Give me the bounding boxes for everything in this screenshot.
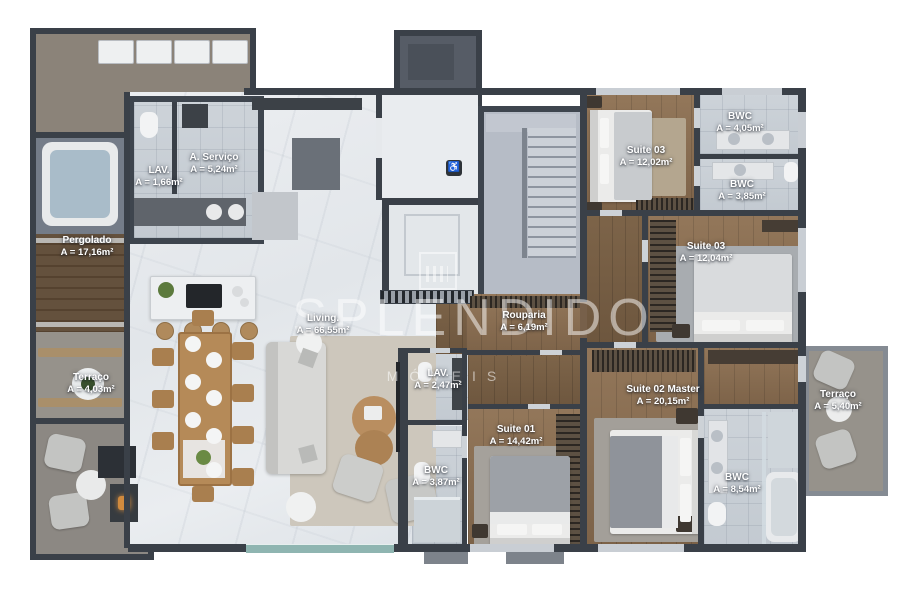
door-bwc-master	[698, 416, 704, 438]
room-label-terraco-esq: TerraçoA = 4,03m²	[67, 372, 114, 396]
dining-chair	[232, 384, 254, 402]
cooktop	[186, 284, 222, 308]
stair-rail	[522, 128, 527, 258]
dinner-plate	[185, 336, 201, 352]
window-suite03a	[596, 88, 680, 95]
dinner-plate	[206, 390, 222, 406]
dining-chair	[232, 342, 254, 360]
door-bwc-suite03a	[694, 108, 700, 128]
hall-console	[252, 98, 362, 110]
room-label-terraco-dir: TerraçoA = 5,40m²	[814, 389, 861, 413]
dining-chair	[192, 310, 214, 326]
door-terrace-right	[798, 356, 806, 382]
toilet	[708, 502, 726, 526]
pillow	[532, 524, 562, 535]
nightstand	[472, 524, 488, 538]
window-bwc-top	[722, 88, 782, 95]
watermark-logo-bars	[426, 266, 448, 282]
hot-tub-water	[50, 150, 110, 218]
pillow	[680, 438, 691, 476]
room-label-bwc-suite01: BWCA = 3,87m²	[412, 465, 459, 489]
nightstand	[586, 96, 602, 108]
room-label-servico: A. ServiçoA = 5,24m²	[190, 152, 239, 176]
door-elevator-hall	[376, 118, 382, 158]
room-label-bwc-suite03a: BWCA = 4,05m²	[716, 111, 763, 135]
bwc-divider-wall	[700, 154, 804, 159]
basin	[762, 133, 774, 145]
suite01-top-wall	[468, 404, 582, 409]
door-suite01	[528, 404, 550, 409]
lav-bottom-wall	[406, 420, 466, 425]
dining-chair	[232, 468, 254, 486]
bowl	[240, 298, 249, 307]
stair-steps	[528, 128, 576, 258]
room-label-rouparia: RoupariaA = 6,19m²	[500, 310, 547, 334]
room-label-lav-intimo: LAV.A = 2,47m²	[414, 368, 461, 392]
ac-unit	[98, 40, 134, 64]
nightstand	[672, 324, 690, 338]
door-suite03a	[600, 210, 622, 216]
facade-ledge	[506, 552, 564, 564]
room-label-suite01: Suite 01A = 14,42m²	[490, 424, 543, 448]
outer-wall-bottom	[128, 544, 806, 552]
washer-drum	[228, 204, 244, 220]
ac-unit	[136, 40, 172, 64]
pillow	[497, 524, 527, 535]
entry-bwc-wall	[704, 404, 804, 409]
dining-chair	[152, 348, 174, 366]
foyer-mat	[252, 192, 298, 240]
nightstand	[676, 408, 698, 424]
room-label-suite03b: Suite 03A = 12,04m²	[680, 241, 733, 265]
duct-shaft-inner	[408, 44, 454, 80]
suite03a-headboard	[590, 110, 598, 202]
door-suite03b	[642, 240, 648, 262]
rouparia-bottom-wall	[466, 350, 582, 355]
glass-railing	[246, 544, 394, 553]
window-right-1	[798, 112, 806, 148]
pillow	[600, 154, 609, 184]
room-label-pergolado: PergoladoA = 17,16m²	[61, 235, 114, 259]
bathtub-inner	[771, 478, 797, 536]
sofa-back	[266, 342, 278, 474]
door-lav-intimo	[430, 348, 450, 353]
outer-wall-left	[124, 92, 130, 548]
room-label-bwc-suite03b: BWCA = 3,85m²	[718, 179, 765, 203]
washer	[182, 104, 208, 128]
side-table	[286, 492, 316, 522]
bowl	[232, 286, 243, 297]
bar-stool	[156, 322, 174, 340]
pillow	[680, 484, 691, 522]
ac-unit	[212, 40, 248, 64]
door-rouparia	[540, 350, 562, 355]
door-bwc-suite03b	[694, 166, 700, 186]
dinner-plate	[185, 412, 201, 428]
shower	[414, 500, 460, 542]
dining-chair	[152, 432, 174, 450]
pergola-beam	[36, 322, 124, 327]
door-bwc-suite01	[462, 436, 467, 458]
foyer-cabinet	[292, 138, 340, 190]
shower-glass	[762, 412, 766, 544]
elevator-hall-floor	[382, 94, 478, 198]
toilet	[140, 112, 158, 138]
dinner-plate	[185, 374, 201, 390]
island-plant	[158, 282, 174, 298]
dining-chair	[232, 426, 254, 444]
ac-unit	[174, 40, 210, 64]
master-entry-wall	[698, 348, 704, 548]
room-label-living: Living.A = 66,55m²	[297, 313, 350, 337]
vanity	[432, 430, 462, 448]
ottoman-tray	[364, 406, 382, 420]
dryer-drum	[206, 204, 222, 220]
window-right-2	[798, 228, 806, 292]
facade-ledge	[424, 552, 468, 564]
basin	[711, 430, 723, 442]
room-label-suite02-master: Suite 02 MasterA = 20,15m²	[626, 384, 699, 408]
suite03b-desk	[762, 220, 802, 232]
window-suite01	[470, 544, 554, 552]
dinner-plate	[206, 428, 222, 444]
master-closet	[592, 350, 696, 372]
master-blanket	[610, 436, 666, 528]
dinner-plate	[206, 352, 222, 368]
suite01-blanket	[490, 456, 570, 512]
terrace-wood-bench	[38, 348, 122, 357]
elevator-sign-icon: ♿	[446, 160, 462, 176]
basin	[734, 164, 746, 176]
bar-stool	[240, 322, 258, 340]
suite01-sheet	[490, 512, 570, 524]
dining-chair	[192, 486, 214, 502]
entry-dresser	[708, 350, 800, 364]
room-label-lav-social: LAV.A = 1,66m²	[135, 165, 182, 189]
dinner-plate	[206, 462, 222, 478]
dining-chair	[152, 390, 174, 408]
pillow	[600, 118, 609, 148]
pillow	[746, 320, 784, 331]
window-master	[598, 544, 684, 552]
floor-plan: ♿	[0, 0, 900, 600]
terrace-wood-bench	[38, 398, 122, 407]
bar-cabinet	[98, 446, 136, 478]
suite03b-headboard	[694, 334, 792, 342]
shower-glass	[414, 497, 460, 500]
room-label-suite03a: Suite 03A = 12,02m²	[620, 145, 673, 169]
shower	[768, 412, 800, 468]
toilet	[784, 162, 798, 182]
master-sheet-fold	[662, 436, 678, 528]
pillow	[702, 320, 740, 331]
outer-wall-top	[244, 88, 804, 95]
room-label-bwc-master: BWCA = 8,54m²	[713, 472, 760, 496]
